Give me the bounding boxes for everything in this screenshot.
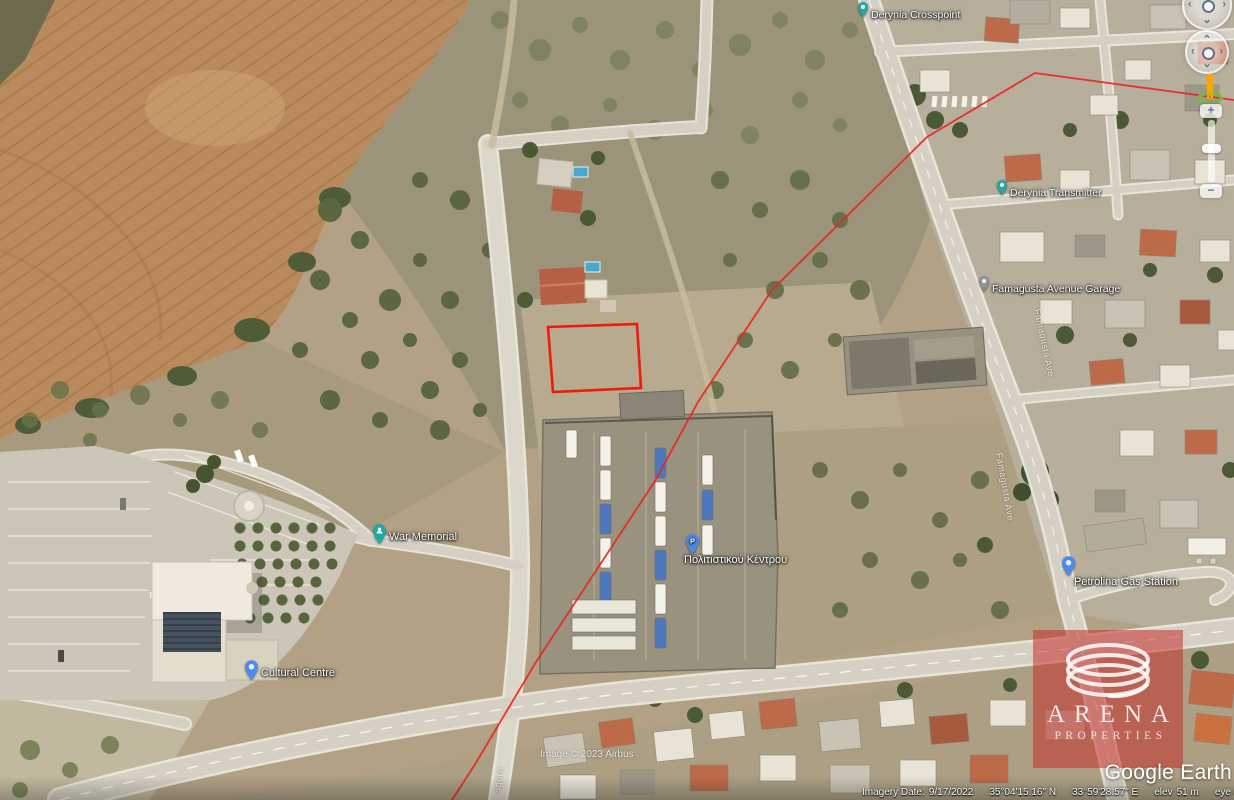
teal-dot-pin-icon [858,2,868,17]
move-hub-icon[interactable] [1202,47,1215,60]
zoom-track[interactable] [1208,120,1215,182]
map-label-text: Famagusta Avenue Garage [992,283,1120,295]
gray-pin-icon [979,276,989,291]
latitude-value: 35°04'15.16" N [989,787,1056,798]
map-label-text: Cultural Centre [261,667,335,679]
map-label-text: Πολιτιστικού Κέντρου [684,554,787,566]
blue-pin-icon [1062,556,1075,576]
look-hub-icon[interactable] [1202,0,1215,13]
longitude-value: 33°59'28.57" E [1072,787,1138,798]
map-label-derynia-transmitter[interactable]: Derynia Transmitter [997,180,1102,199]
move-right-arrow-icon[interactable]: › [1219,47,1223,58]
elevation-value: 51 m [1177,787,1199,798]
look-left-arrow-icon[interactable]: ‹ [1188,0,1192,11]
map-label-text: Petrolina Gas Station [1074,576,1178,588]
google-earth-logo: Google Earth [1105,761,1232,785]
teal-pin-icon [997,180,1007,195]
imagery-date-label: Imagery Date: [862,787,925,798]
look-down-arrow-icon[interactable]: ⌄ [1202,15,1211,26]
map-label-war-memorial[interactable]: War Memorial [373,524,457,544]
arena-spiral-logo-icon [1053,638,1163,700]
map-label-cultural-centre[interactable]: Cultural Centre [245,660,335,680]
zoom-slider[interactable]: + − [1200,104,1222,198]
map-label-famagusta-avenue-garage[interactable]: Famagusta Avenue Garage [979,276,1120,295]
map-label-derynia-crosspoint[interactable]: Derynia Crosspoint [858,2,960,21]
imagery-credit: Image © 2023 Airbus [540,749,634,760]
google-earth-viewport: Derynia Crosspoint Derynia Transmitter F… [0,0,1234,800]
move-left-arrow-icon[interactable]: ‹ [1191,47,1195,58]
elevation-label: elev [1154,787,1172,798]
arena-subtitle: PROPERTIES [1054,731,1166,743]
status-bar: Imagery Date: 9/17/2022 35°04'15.16" N 3… [862,787,1230,798]
move-up-arrow-icon[interactable]: ⌃ [1202,35,1211,46]
arena-wordmark: ARENA [1047,702,1178,727]
arena-properties-watermark: ARENA PROPERTIES [1033,630,1183,768]
pegman-icon[interactable] [1197,73,1223,103]
zoom-in-button[interactable]: + [1200,104,1222,118]
bus-depot [540,390,778,674]
map-label-text: War Memorial [389,531,457,543]
move-down-arrow-icon[interactable]: ⌄ [1202,59,1211,70]
look-right-arrow-icon[interactable]: › [1222,0,1226,11]
map-label-text: Derynia Crosspoint [871,9,960,21]
move-joystick[interactable]: ⌃ ‹ › ⌄ [1185,30,1229,74]
eye-alt-label: eye alt [1215,787,1234,798]
map-label-text: Derynia Transmitter [1010,187,1102,199]
svg-text:P: P [690,536,695,545]
map-label-petrolina-gas-station[interactable]: Petrolina Gas Station [1062,556,1178,588]
blue-pin-icon [245,660,258,680]
map-label-politistikou-kentrou[interactable]: P Πολιτιστικού Κέντρου [686,534,787,566]
blue-parking-pin-icon: P [686,534,699,554]
zoom-handle[interactable] [1202,144,1221,153]
imagery-date-value: 9/17/2022 [929,787,974,798]
teal-person-pin-icon [373,524,386,544]
dark-warehouse [843,327,987,395]
zoom-out-button[interactable]: − [1200,184,1222,198]
